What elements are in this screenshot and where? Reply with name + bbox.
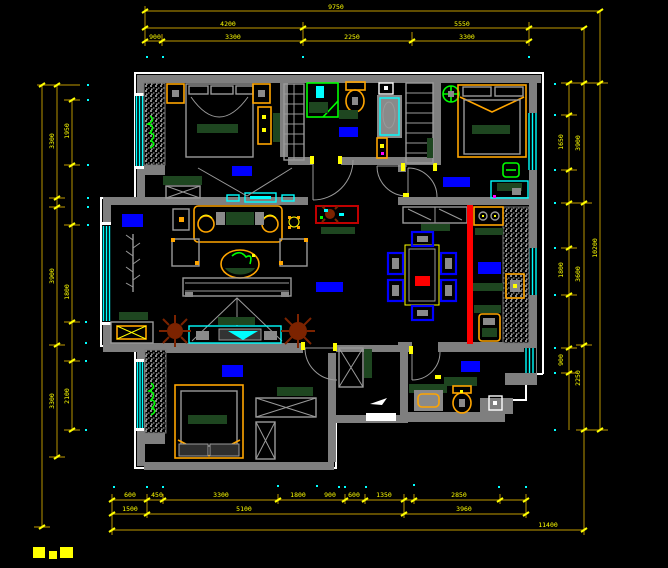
window-glyph-living: [102, 222, 111, 325]
walls: [103, 75, 541, 470]
room-label-block: [478, 262, 501, 274]
dimension-label: 900: [557, 354, 565, 366]
dimension-label: 1800: [290, 491, 306, 499]
window-glyph-bathroom-br: [524, 348, 536, 373]
entry-corridor: [339, 348, 396, 421]
floor-plan-drawing: 9750420055509003300225033003300390033001…: [0, 0, 668, 568]
door-arc-bathroom-top: [313, 160, 353, 200]
dimension-label: 600: [124, 491, 136, 499]
desk-icon: [491, 181, 528, 198]
dimension-label: 3300: [48, 133, 56, 149]
kitchen: [473, 207, 529, 343]
side-table-icon: [173, 209, 189, 230]
dimension-label: 1650: [557, 134, 565, 150]
dimension-label: 1500: [122, 505, 138, 513]
dimension-label: 10200: [591, 238, 599, 258]
coat-rack-icon: [126, 234, 140, 292]
chair-icon: [474, 305, 501, 341]
grid-marker: [33, 547, 73, 559]
room-label-block: [339, 127, 358, 137]
dimension-label: 1800: [557, 262, 565, 278]
red-divider: [467, 205, 473, 344]
armchair-icon: [171, 238, 199, 266]
cabinet-icon: [377, 138, 387, 158]
cad-canvas: 9750420055509003300225033003300390033001…: [0, 0, 668, 568]
dimension-label: 2100: [63, 388, 71, 404]
nightstand-icon: [253, 84, 270, 103]
dimension-label: 9750: [328, 3, 344, 11]
dimension-label: 1800: [63, 284, 71, 300]
sofa-icon: [194, 206, 282, 242]
dimension-label: 900: [324, 491, 336, 499]
plant-icon: [159, 315, 191, 347]
dimension-label: 4200: [220, 20, 236, 28]
coffee-table-icon: [221, 250, 259, 278]
ceiling-fan-icon: [443, 86, 459, 102]
sofa-back-table-icon: [183, 278, 291, 297]
dining-table-icon: [405, 245, 439, 305]
vanity-icon: [377, 95, 402, 138]
entry-arrow-icon: [370, 398, 387, 405]
basin-icon: [414, 390, 443, 411]
dimension-label: 5100: [236, 505, 252, 513]
room-label-block: [232, 166, 252, 176]
bed-icon: [186, 84, 253, 157]
dimension-label: 1950: [63, 123, 71, 139]
dimension-label: 600: [348, 491, 360, 499]
door-arc-bedroom-tr: [408, 168, 437, 197]
dimension-label: 3300: [213, 491, 229, 499]
bed-icon: [175, 385, 243, 458]
shower-icon: [307, 83, 338, 117]
flower-icon: [288, 216, 300, 229]
bench-icon: [163, 176, 202, 198]
room-label-block: [222, 365, 243, 377]
dimension-label: 3960: [456, 505, 472, 513]
dimension-label: 5550: [454, 20, 470, 28]
dimension-label: 450: [151, 491, 163, 499]
dimension-label: 3300: [459, 33, 475, 41]
sideboard-icon: [403, 207, 467, 231]
chair-icon: [503, 163, 519, 177]
bathroom-top: [307, 82, 433, 163]
cabinet-icon: [256, 422, 275, 459]
armchair-icon: [279, 238, 308, 266]
room-label-block: [443, 177, 470, 187]
toilet-icon: [346, 82, 365, 112]
shoe-cabinet-icon: [339, 348, 372, 387]
dimension-label: 3600: [574, 266, 582, 282]
dining-room: [388, 205, 473, 344]
dimension-label: 3300: [48, 393, 56, 409]
room-label-block: [316, 282, 343, 292]
entry-threshold: [366, 413, 396, 421]
room-label-block: [122, 214, 143, 227]
toilet-icon: [453, 386, 471, 413]
dimension-label: 3900: [574, 135, 582, 151]
dresser-icon: [258, 107, 280, 144]
stove-icon: [474, 207, 503, 225]
dimension-label: 2850: [451, 491, 467, 499]
counter-icon: [503, 207, 529, 343]
window-glyph-bedroom-bl: [136, 359, 144, 431]
window-glyph-bedroom-tl: [135, 93, 144, 169]
hall-closet-icon: [406, 83, 433, 163]
dimension-label: 3300: [225, 33, 241, 41]
room-label-block: [461, 361, 480, 372]
dimension-label: 2250: [574, 370, 582, 386]
sink-icon: [379, 83, 393, 94]
shelf: [339, 110, 358, 119]
plant-icon: [281, 314, 315, 348]
dimension-label: 11400: [538, 521, 558, 529]
nightstand-icon: [167, 84, 184, 103]
bed-icon: [458, 85, 526, 157]
dimension-label: 3900: [48, 268, 56, 284]
planter-box-icon: [316, 206, 358, 223]
dimension-label: 2250: [344, 33, 360, 41]
living-room: [111, 206, 358, 348]
radiator-cabinet-icon: [111, 312, 153, 343]
window-glyph-bedroom-tr: [527, 113, 538, 170]
dimension-label: 1350: [376, 491, 392, 499]
cabinet-icon: [256, 398, 316, 417]
dimension-label: 900: [149, 33, 161, 41]
